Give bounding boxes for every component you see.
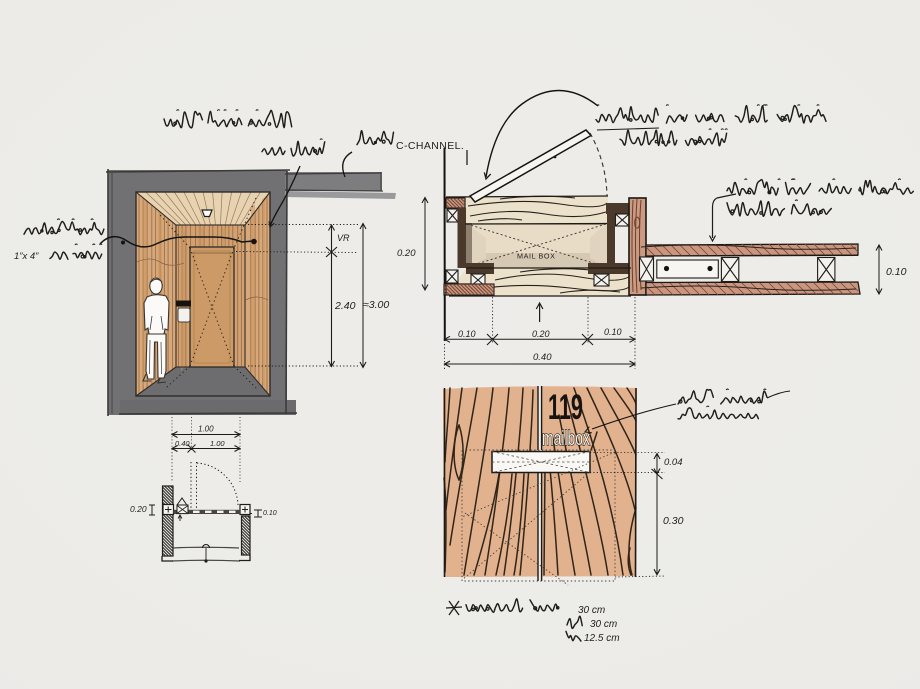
svg-text:30 cm: 30 cm xyxy=(578,605,605,616)
svg-text:0.10: 0.10 xyxy=(886,266,907,278)
svg-text:MAIL BOX: MAIL BOX xyxy=(517,252,555,261)
svg-text:0.04: 0.04 xyxy=(664,457,683,468)
svg-text:0.40: 0.40 xyxy=(175,439,190,448)
svg-text:119: 119 xyxy=(548,388,583,427)
svg-text:0.10: 0.10 xyxy=(604,327,622,337)
svg-text:0.10: 0.10 xyxy=(458,329,476,339)
svg-text:2.40: 2.40 xyxy=(334,300,356,312)
svg-text:0.20: 0.20 xyxy=(397,248,416,259)
svg-text:VR: VR xyxy=(337,233,350,243)
svg-text:0.20: 0.20 xyxy=(130,504,147,514)
svg-text:mailbox: mailbox xyxy=(542,428,590,450)
svg-text:1”x 4”: 1”x 4” xyxy=(14,251,39,262)
svg-text:≈3.00: ≈3.00 xyxy=(363,299,389,311)
svg-text:1.00: 1.00 xyxy=(210,439,225,448)
svg-text:12.5 cm: 12.5 cm xyxy=(584,633,620,644)
svg-text:0.40: 0.40 xyxy=(533,352,552,363)
svg-text:0.20: 0.20 xyxy=(532,329,550,339)
svg-text:30 cm: 30 cm xyxy=(590,619,617,630)
svg-text:C-CHANNEL.: C-CHANNEL. xyxy=(396,140,464,152)
svg-text:0.30: 0.30 xyxy=(663,515,684,527)
svg-text:1.00: 1.00 xyxy=(198,425,214,434)
svg-text:0.10: 0.10 xyxy=(263,510,277,517)
